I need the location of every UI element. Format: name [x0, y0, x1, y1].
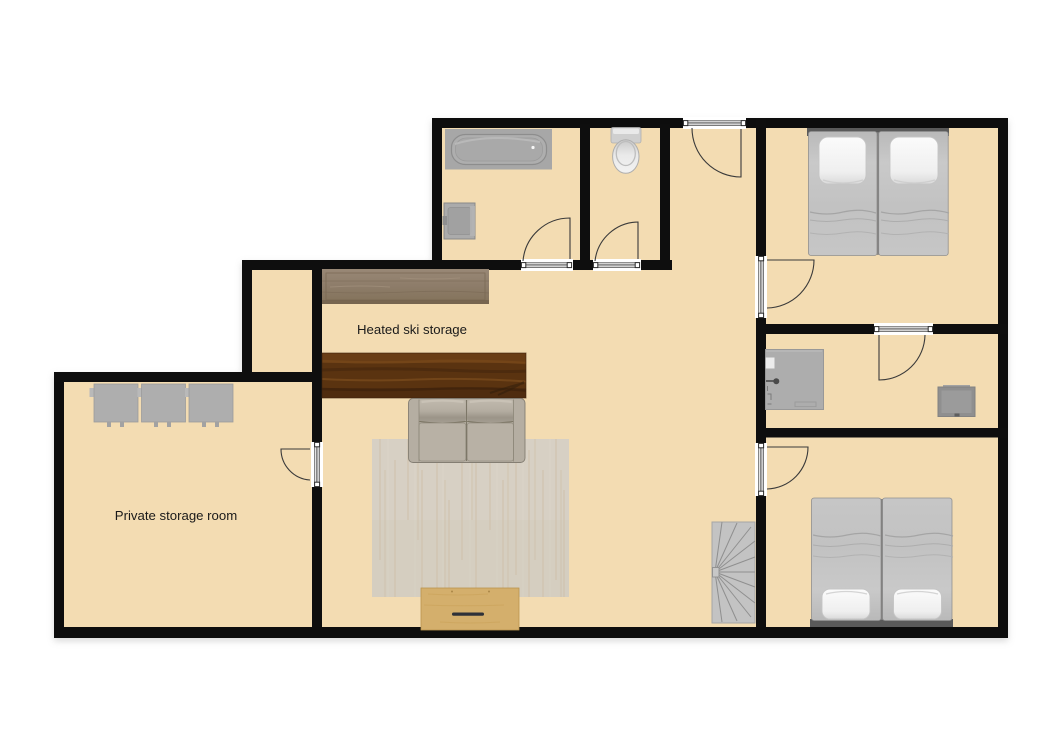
svg-text:Heated ski storage: Heated ski storage — [357, 322, 467, 337]
svg-text:Private storage room: Private storage room — [115, 508, 237, 523]
